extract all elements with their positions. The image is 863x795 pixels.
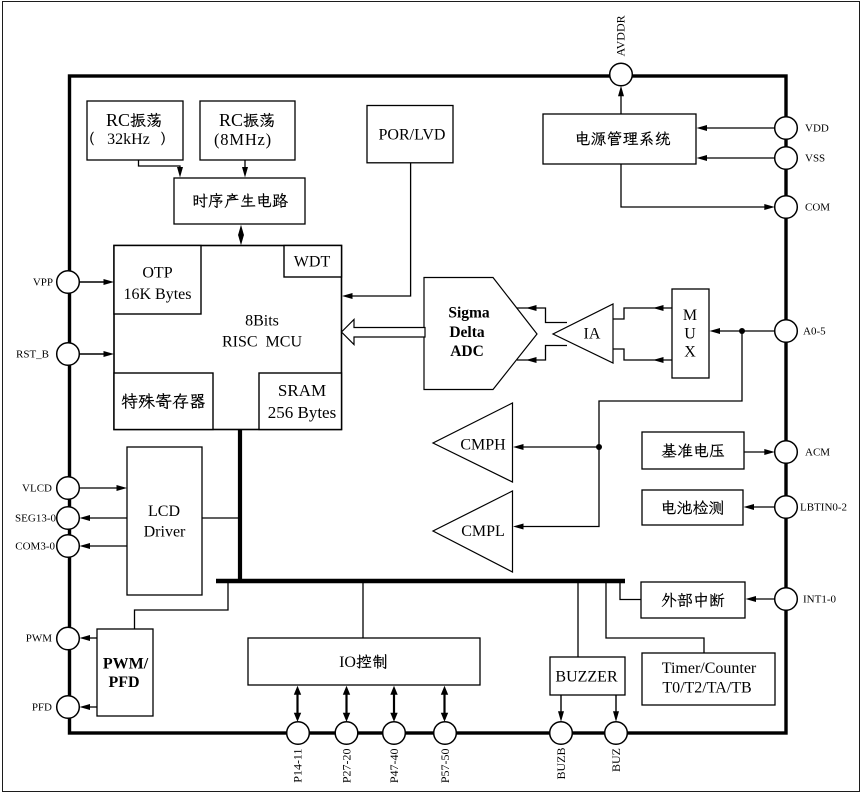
- svg-text:32kHz: 32kHz: [107, 131, 150, 148]
- svg-text:Driver: Driver: [144, 524, 186, 541]
- svg-text:VPP: VPP: [33, 276, 53, 288]
- svg-text:RC: RC: [219, 110, 243, 130]
- svg-text:T0/T2/TA/TB: T0/T2/TA/TB: [662, 680, 751, 697]
- svg-text:P14-11: P14-11: [290, 749, 304, 783]
- svg-text:Delta: Delta: [449, 324, 485, 341]
- svg-text:(8MHz): (8MHz): [214, 130, 272, 149]
- svg-text:PWM: PWM: [26, 632, 53, 644]
- svg-text:Timer/Counter: Timer/Counter: [662, 660, 757, 677]
- svg-text:Sigma: Sigma: [448, 304, 490, 321]
- svg-text:P27-20: P27-20: [339, 749, 353, 784]
- svg-text:RC: RC: [106, 110, 130, 130]
- svg-text:256 Bytes: 256 Bytes: [268, 403, 336, 422]
- svg-text:SRAM: SRAM: [278, 381, 326, 400]
- svg-text:COM: COM: [805, 201, 830, 213]
- svg-text:VLCD: VLCD: [22, 482, 52, 494]
- svg-text:CMPH: CMPH: [460, 437, 506, 454]
- svg-text:8Bits: 8Bits: [245, 313, 279, 330]
- svg-text:CMPL: CMPL: [461, 523, 505, 540]
- svg-text:LBTIN0-2: LBTIN0-2: [800, 501, 847, 513]
- svg-text:LCD: LCD: [148, 503, 180, 520]
- svg-text:RST_B: RST_B: [16, 348, 49, 360]
- svg-text:COM3-0: COM3-0: [15, 540, 55, 552]
- svg-text:VDD: VDD: [805, 122, 829, 134]
- svg-text:16K Bytes: 16K Bytes: [124, 286, 192, 303]
- svg-text:M: M: [683, 307, 697, 324]
- svg-text:U: U: [684, 326, 696, 343]
- svg-text:PFD: PFD: [32, 701, 52, 713]
- svg-text:PWM/: PWM/: [103, 656, 149, 673]
- svg-text:X: X: [684, 344, 696, 361]
- svg-text:BUZ: BUZ: [609, 748, 623, 772]
- svg-text:SEG13-0: SEG13-0: [15, 512, 56, 524]
- svg-text:PFD: PFD: [108, 674, 139, 691]
- svg-text:BUZZER: BUZZER: [555, 669, 618, 686]
- svg-text:IA: IA: [584, 326, 601, 343]
- svg-text:INT1-0: INT1-0: [803, 593, 836, 605]
- svg-text:P57-50: P57-50: [438, 749, 452, 784]
- svg-text:POR/LVD: POR/LVD: [379, 127, 446, 144]
- svg-text:WDT: WDT: [294, 254, 331, 271]
- svg-text:VSS: VSS: [805, 152, 825, 164]
- svg-text:IO: IO: [339, 654, 356, 671]
- svg-text:ACM: ACM: [805, 446, 830, 458]
- svg-text:AVDDR: AVDDR: [613, 15, 627, 56]
- svg-text:RISC MCU: RISC MCU: [222, 334, 302, 351]
- svg-text:P47-40: P47-40: [387, 749, 401, 784]
- svg-text:BUZB: BUZB: [554, 748, 568, 780]
- svg-text:A0-5: A0-5: [803, 325, 826, 337]
- svg-text:OTP: OTP: [142, 265, 172, 282]
- svg-text:ADC: ADC: [450, 343, 484, 360]
